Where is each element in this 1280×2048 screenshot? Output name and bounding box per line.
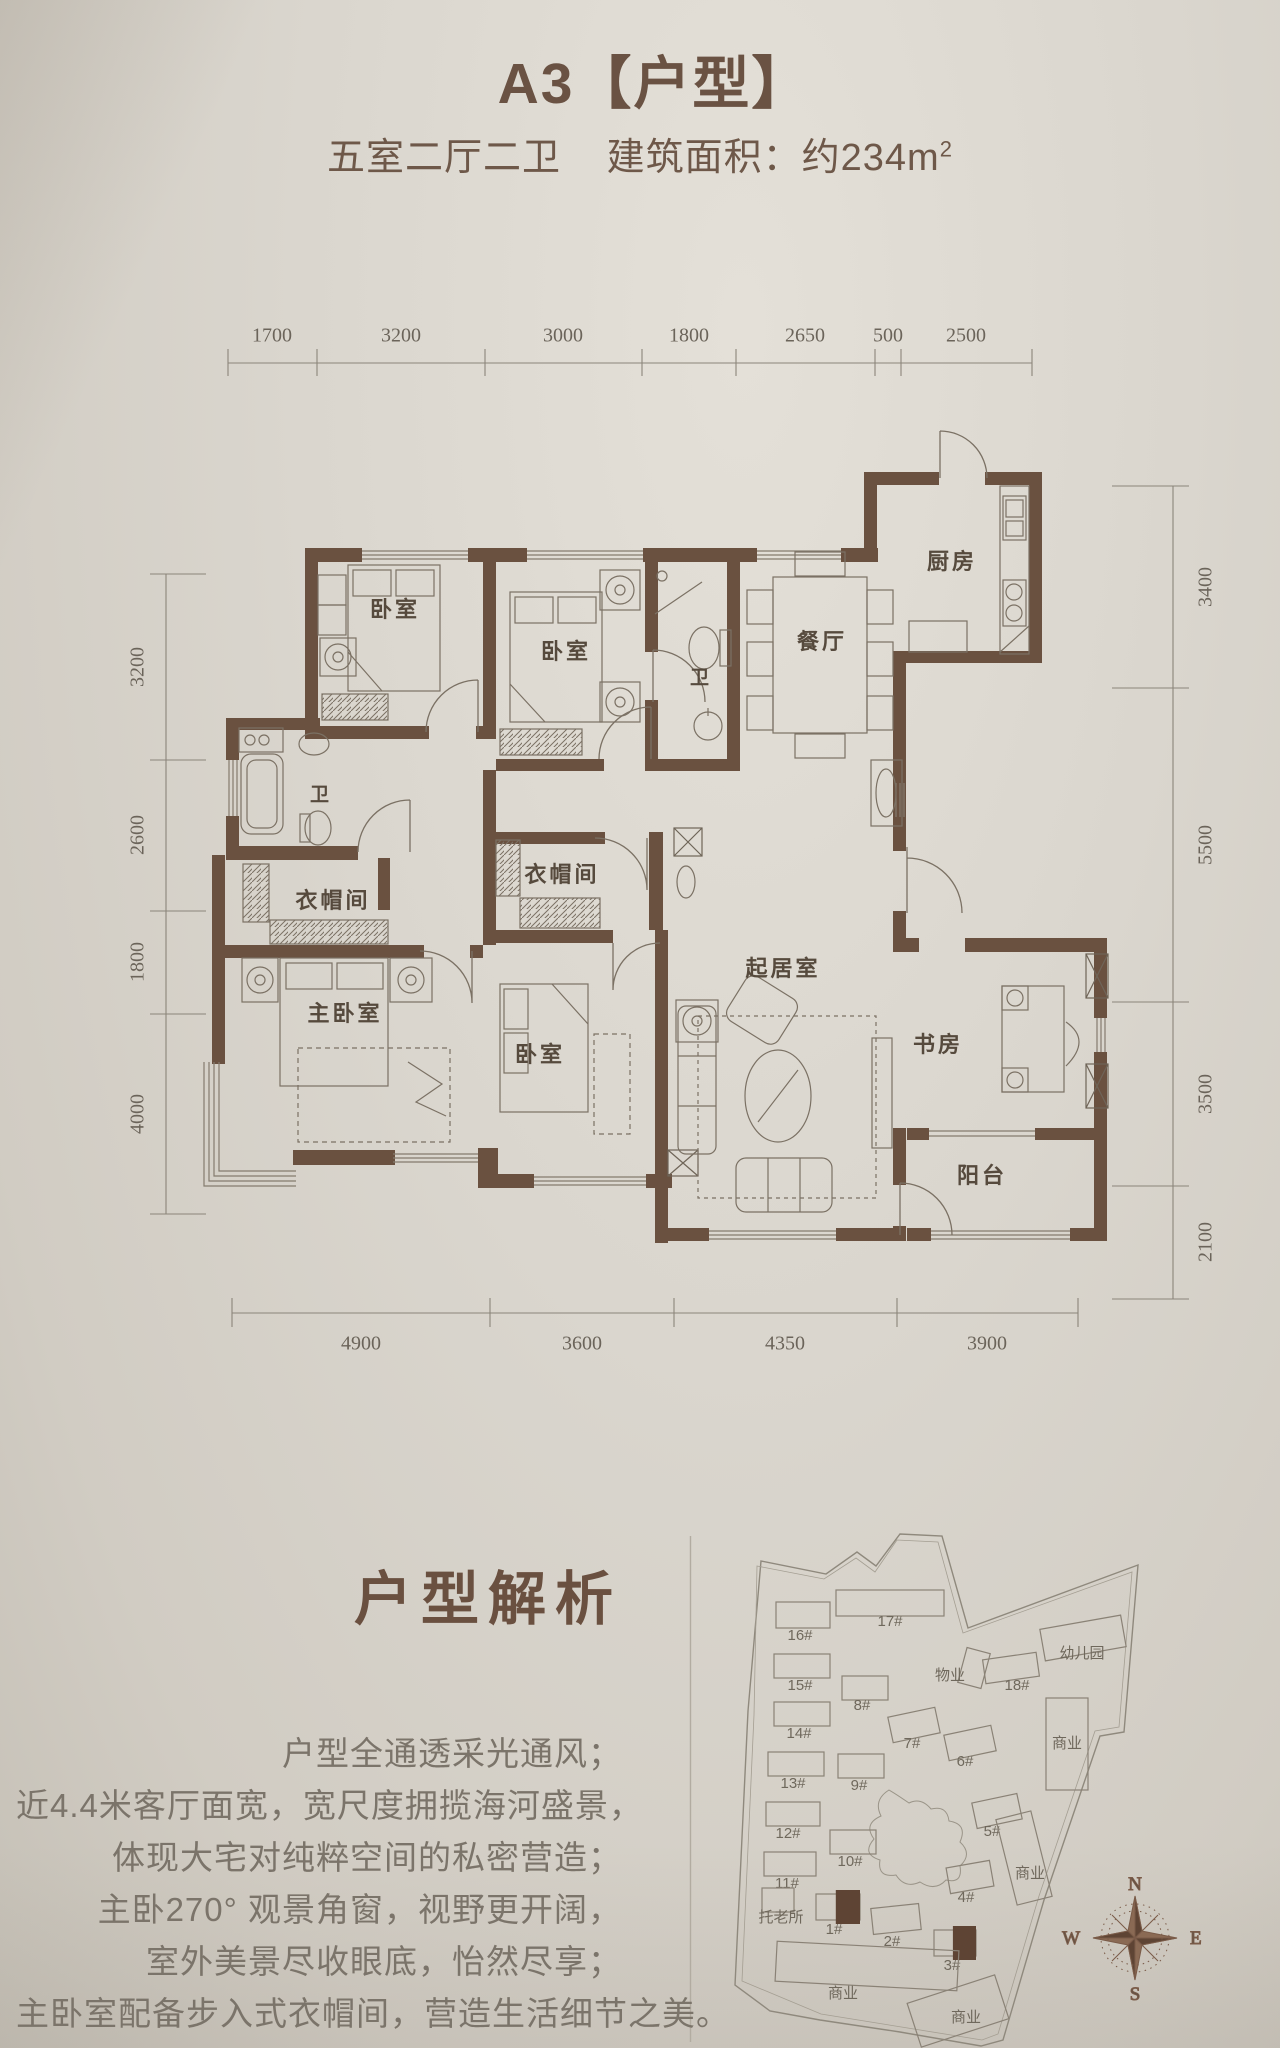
analysis-line: 体现大宅对纯粹空间的私密营造； <box>16 1832 622 1884</box>
room-label: 阳台 <box>957 1158 1007 1190</box>
dimension-label: 1700 <box>252 325 292 348</box>
room-label: 书房 <box>913 1027 963 1059</box>
analysis-line: 主卧室配备步入式衣帽间，营造生活细节之美。 <box>16 1988 622 2040</box>
dimension-label: 3900 <box>967 1333 1007 1356</box>
dimension-label: 5500 <box>1195 825 1218 865</box>
analysis-text: 户型全通透采光通风；近4.4米客厅面宽，宽尺度拥揽海河盛景，体现大宅对纯粹空间的… <box>16 1728 622 2040</box>
analysis-line: 户型全通透采光通风； <box>16 1728 622 1780</box>
room-label: 衣帽间 <box>295 883 370 915</box>
dimension-label: 4350 <box>765 1333 805 1356</box>
analysis-section: 户型解析 户型全通透采光通风；近4.4米客厅面宽，宽尺度拥揽海河盛景，体现大宅对… <box>16 1552 622 2040</box>
dimension-label: 3500 <box>1195 1074 1218 1114</box>
dimension-label: 2500 <box>946 325 986 348</box>
room-label: 餐厅 <box>797 624 847 656</box>
brochure-page: A3【户型】 五室二厅二卫 建筑面积：约234m2 <box>0 0 1280 2048</box>
dimension-label: 4000 <box>127 1094 150 1134</box>
room-label: 厨房 <box>927 544 977 576</box>
room-label: 卧室 <box>515 1037 565 1069</box>
analysis-title: 户型解析 <box>16 1552 622 1636</box>
dimension-label: 4900 <box>341 1333 381 1356</box>
room-label: 卫 <box>310 780 330 807</box>
dimension-label: 500 <box>873 325 903 348</box>
dimension-label: 3400 <box>1195 567 1218 607</box>
room-label: 起居室 <box>745 951 820 983</box>
analysis-line: 室外美景尽收眼底，怡然尽享； <box>16 1936 622 1988</box>
analysis-line: 近4.4米客厅面宽，宽尺度拥揽海河盛景， <box>16 1780 622 1832</box>
dimension-label: 3600 <box>562 1333 602 1356</box>
dimension-label: 3000 <box>543 325 583 348</box>
dimension-label: 2650 <box>785 325 825 348</box>
room-label: 主卧室 <box>307 996 382 1028</box>
dimension-label: 1800 <box>127 942 150 982</box>
dimension-label: 3200 <box>381 325 421 348</box>
dimension-label: 1800 <box>669 325 709 348</box>
analysis-line: 主卧270° 观景角窗，视野更开阔， <box>16 1884 622 1936</box>
dimension-label: 3200 <box>127 647 150 687</box>
dimension-label: 2600 <box>127 815 150 855</box>
room-label: 衣帽间 <box>524 857 599 889</box>
dimension-label: 2100 <box>1195 1222 1218 1262</box>
room-label: 卧室 <box>370 592 420 624</box>
room-label: 卫 <box>690 663 710 690</box>
room-label: 卧室 <box>541 634 591 666</box>
